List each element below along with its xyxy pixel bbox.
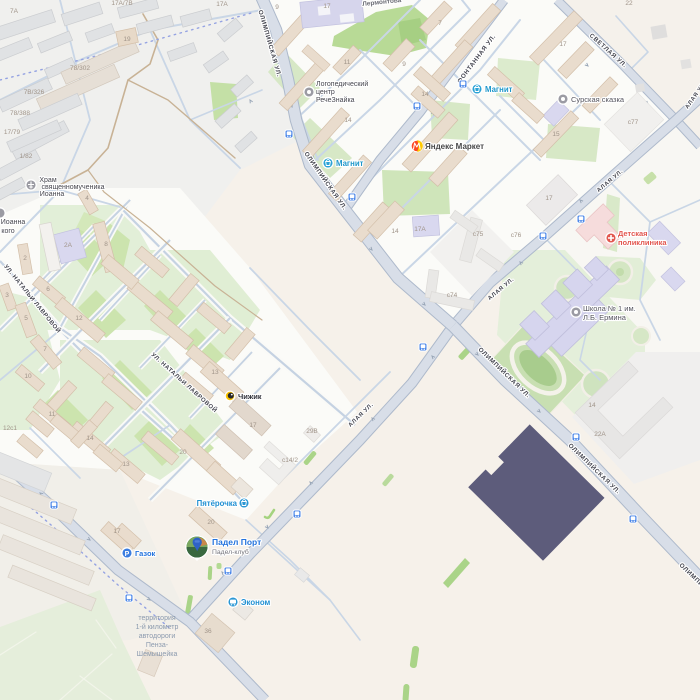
svg-text:6: 6: [46, 286, 50, 293]
svg-text:17: 17: [545, 195, 553, 202]
svg-text:13: 13: [122, 461, 130, 468]
svg-text:10: 10: [24, 373, 32, 380]
svg-text:Магнит: Магнит: [485, 85, 513, 94]
svg-text:78/302: 78/302: [70, 65, 90, 72]
svg-text:с14/2: с14/2: [282, 457, 298, 464]
svg-text:15: 15: [552, 131, 560, 138]
svg-text:14: 14: [391, 228, 399, 235]
svg-text:19: 19: [123, 36, 131, 43]
svg-text:29В: 29В: [306, 428, 318, 435]
svg-text:Пенза-: Пенза-: [146, 642, 169, 649]
svg-text:автодороги: автодороги: [139, 633, 176, 640]
svg-text:Иоанна: Иоанна: [40, 191, 65, 198]
svg-text:36: 36: [204, 628, 212, 635]
svg-text:17: 17: [249, 422, 257, 429]
svg-text:2: 2: [23, 255, 27, 262]
svg-text:РечеЗнайка: РечеЗнайка: [316, 96, 355, 104]
svg-text:4: 4: [85, 195, 89, 202]
svg-text:14: 14: [421, 91, 429, 98]
svg-text:22А: 22А: [594, 431, 606, 438]
svg-text:9: 9: [275, 4, 279, 11]
svg-text:20: 20: [207, 519, 215, 526]
svg-text:Сурская сказка: Сурская сказка: [571, 95, 625, 104]
svg-text:2А: 2А: [64, 242, 73, 249]
svg-text:14: 14: [344, 117, 352, 124]
svg-text:кого: кого: [1, 228, 14, 235]
svg-text:17: 17: [323, 3, 331, 10]
svg-text:территория: территория: [138, 615, 176, 622]
svg-text:P: P: [125, 551, 130, 558]
svg-text:Падел Порт: Падел Порт: [212, 537, 261, 547]
svg-text:78/388: 78/388: [10, 110, 30, 117]
svg-text:12: 12: [75, 315, 83, 322]
svg-text:12с1: 12с1: [3, 425, 17, 432]
svg-text:11: 11: [49, 411, 56, 418]
svg-text:14: 14: [86, 435, 94, 442]
svg-text:8: 8: [104, 241, 108, 248]
svg-text:Пятёрочка: Пятёрочка: [197, 499, 238, 508]
svg-text:14: 14: [588, 402, 596, 409]
svg-text:17А/7В: 17А/7В: [111, 0, 132, 7]
svg-text:с75: с75: [473, 231, 484, 238]
svg-text:5: 5: [24, 315, 28, 322]
svg-text:11: 11: [344, 59, 351, 66]
svg-text:Эконом: Эконом: [241, 598, 270, 607]
svg-text:Логопедический: Логопедический: [316, 80, 368, 88]
svg-text:9: 9: [402, 61, 406, 68]
svg-text:Падел-клуб: Падел-клуб: [212, 548, 249, 556]
svg-text:7А: 7А: [10, 8, 19, 15]
svg-text:Чижик: Чижик: [238, 392, 262, 401]
svg-text:с76: с76: [511, 232, 522, 239]
svg-text:поликлиника: поликлиника: [618, 238, 667, 247]
svg-text:центр: центр: [316, 89, 335, 96]
svg-text:Школа № 1 им.: Школа № 1 им.: [583, 304, 636, 313]
svg-text:7: 7: [438, 20, 442, 27]
svg-text:7В/326: 7В/326: [24, 89, 45, 96]
svg-text:Шемышейка: Шемышейка: [137, 650, 178, 658]
svg-text:22: 22: [625, 0, 633, 7]
svg-text:Детская: Детская: [618, 229, 648, 238]
svg-text:Яндекс Маркет: Яндекс Маркет: [425, 142, 484, 151]
svg-text:13: 13: [211, 369, 219, 376]
svg-text:1-й километр: 1-й километр: [136, 623, 179, 631]
svg-text:7: 7: [43, 346, 47, 353]
svg-text:священномученика: священномученика: [42, 184, 105, 191]
svg-text:17: 17: [559, 41, 567, 48]
svg-text:17А: 17А: [414, 226, 426, 233]
svg-text:17А: 17А: [216, 1, 228, 8]
svg-text:20: 20: [179, 449, 187, 456]
svg-text:с74: с74: [447, 292, 458, 299]
svg-text:17/79: 17/79: [4, 129, 21, 136]
svg-text:Храм: Храм: [39, 177, 56, 184]
svg-text:Иоанна: Иоанна: [1, 219, 26, 226]
svg-text:с77: с77: [628, 119, 639, 126]
svg-text:Газок: Газок: [135, 549, 156, 558]
svg-text:Л.Б. Ермина: Л.Б. Ермина: [583, 313, 627, 322]
svg-text:17: 17: [113, 528, 121, 535]
svg-text:3: 3: [5, 292, 9, 299]
svg-text:Магнит: Магнит: [336, 159, 364, 168]
svg-text:1/82: 1/82: [20, 153, 33, 160]
